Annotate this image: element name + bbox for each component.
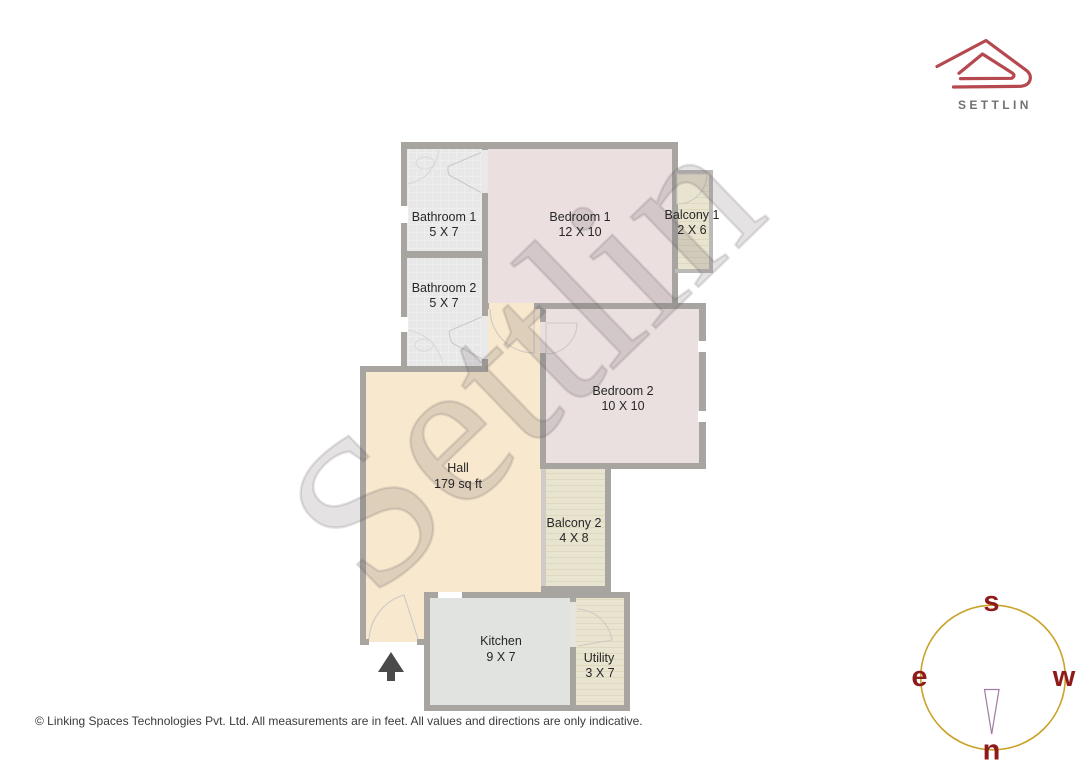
svg-text:179 sq ft: 179 sq ft [434, 477, 482, 491]
svg-text:w: w [1052, 661, 1076, 693]
svg-text:s: s [983, 586, 999, 618]
svg-text:Bathroom 1: Bathroom 1 [412, 210, 477, 224]
svg-text:2 X 6: 2 X 6 [677, 223, 706, 237]
svg-text:Utility: Utility [584, 651, 615, 665]
svg-text:5 X 7: 5 X 7 [429, 296, 458, 310]
svg-text:Bedroom 1: Bedroom 1 [549, 210, 610, 224]
svg-text:4 X 8: 4 X 8 [559, 531, 588, 545]
svg-text:Bedroom 2: Bedroom 2 [592, 384, 653, 398]
svg-text:9 X 7: 9 X 7 [486, 650, 515, 664]
svg-text:e: e [911, 661, 927, 693]
svg-text:Hall: Hall [447, 461, 469, 475]
svg-text:12 X 10: 12 X 10 [558, 225, 601, 239]
svg-text:Kitchen: Kitchen [480, 634, 522, 648]
svg-text:n: n [983, 735, 1001, 764]
svg-text:Balcony 2: Balcony 2 [547, 516, 602, 530]
svg-text:10 X 10: 10 X 10 [601, 399, 644, 413]
svg-text:SETTLIN: SETTLIN [958, 98, 1032, 112]
svg-text:© Linking Spaces Technologies: © Linking Spaces Technologies Pvt. Ltd. … [35, 714, 643, 728]
svg-text:5 X 7: 5 X 7 [429, 225, 458, 239]
svg-text:3 X 7: 3 X 7 [585, 666, 614, 680]
svg-text:Balcony 1: Balcony 1 [665, 208, 720, 222]
svg-text:Bathroom 2: Bathroom 2 [412, 281, 477, 295]
